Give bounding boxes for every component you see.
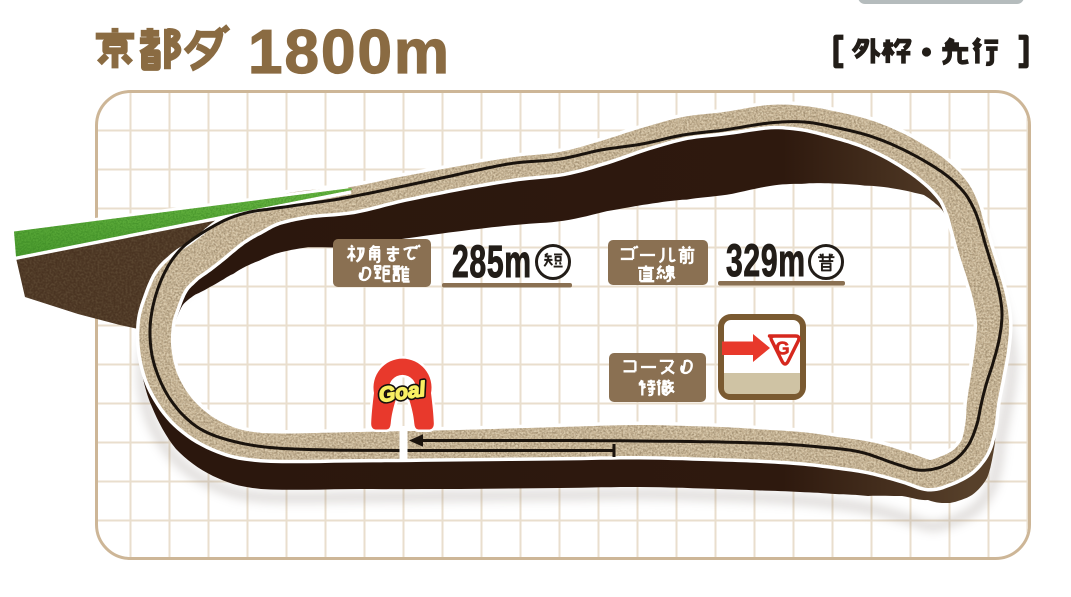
- svg-text:1800m: 1800m: [248, 18, 451, 87]
- svg-text:285m: 285m: [452, 237, 532, 288]
- svg-text:G: G: [775, 338, 789, 359]
- svg-text:329m: 329m: [726, 236, 806, 287]
